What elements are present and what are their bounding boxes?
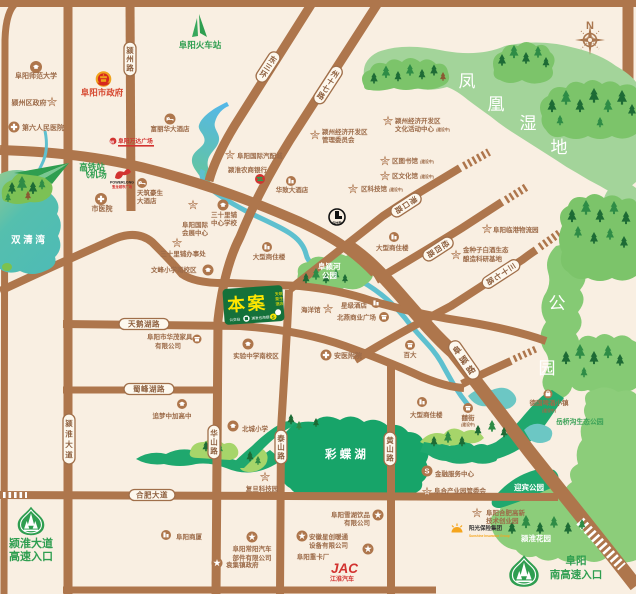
svg-text:复旦科技园: 复旦科技园 [245,484,279,493]
svg-text:华致大酒店: 华致大酒店 [276,185,309,194]
svg-text:公: 公 [549,294,566,313]
svg-text:园: 园 [539,359,556,378]
svg-text:囍街: 囍街 [462,413,476,422]
svg-text:大型商住楼: 大型商住楼 [253,252,286,261]
svg-text:阜阳临港物流园: 阜阳临港物流园 [493,225,539,234]
svg-text:技术创业园: 技术创业园 [486,516,519,525]
svg-text:大酒店: 大酒店 [137,196,157,205]
svg-text:大型商住楼: 大型商住楼 [410,410,443,419]
svg-text:有限公司: 有限公司 [344,518,370,527]
svg-text:SHR: SHR [332,221,342,226]
svg-text:中心学校: 中心学校 [211,218,238,227]
svg-text:(建设中): (建设中) [420,174,435,179]
svg-text:阜阳: 阜阳 [566,554,587,567]
svg-text:三十里铺: 三十里铺 [211,210,238,219]
svg-text:山: 山 [210,437,218,447]
svg-text:江淮汽车: 江淮汽车 [330,575,354,583]
svg-text:安徽星创暖通: 安徽星创暖通 [309,532,349,541]
svg-text:阜阳商厦: 阜阳商厦 [176,532,203,541]
svg-text:会展中心: 会展中心 [182,228,209,237]
svg-text:凤: 凤 [459,72,476,91]
svg-text:阜阳火车站: 阜阳火车站 [179,40,222,50]
svg-text:阜阳合肥高新: 阜阳合肥高新 [486,508,526,517]
svg-text:S: S [271,315,274,320]
svg-text:路: 路 [210,445,218,455]
svg-text:高速入口: 高速入口 [9,549,53,563]
svg-text:(建设中): (建设中) [461,422,476,427]
svg-text:阜阳万达广场: 阜阳万达广场 [118,137,153,145]
svg-text:实验中学南校区: 实验中学南校区 [233,351,279,360]
svg-text:本案: 本案 [227,293,268,316]
svg-text:合肥大道: 合肥大道 [136,490,168,500]
svg-text:阜阳国际: 阜阳国际 [182,220,209,229]
svg-text:山: 山 [277,442,285,452]
svg-text:黄: 黄 [386,435,394,445]
svg-text:(建设中): (建设中) [420,159,435,164]
svg-text:颍: 颍 [125,45,134,55]
svg-text:北城小学: 北城小学 [242,424,269,433]
svg-text:颍州经济开发区: 颍州经济开发区 [321,127,368,136]
svg-text:天鹅湖路: 天鹅湖路 [128,319,160,329]
svg-text:颍州经济开发区: 颍州经济开发区 [394,116,441,125]
svg-text:阳光保险集团: 阳光保险集团 [469,524,503,532]
svg-text:市医院: 市医院 [92,204,113,213]
svg-text:文峰小学南校区: 文峰小学南校区 [150,265,197,274]
svg-text:第六人民医院: 第六人民医院 [22,123,64,132]
svg-text:酿造科研基地: 酿造科研基地 [463,254,503,263]
svg-text:(建设中): (建设中) [436,127,451,132]
svg-text:有限公司: 有限公司 [155,341,181,350]
svg-text:南高速入口: 南高速入口 [550,568,603,581]
svg-text:JAC: JAC [331,561,358,576]
svg-text:公园: 公园 [322,271,337,280]
svg-text:华: 华 [210,428,218,438]
svg-text:Sunshine Insurance Group: Sunshine Insurance Group [469,534,510,538]
svg-text:酒店: 酒店 [275,300,283,307]
svg-text:S: S [424,467,429,476]
svg-text:地: 地 [551,138,568,157]
svg-text:双 清 湾: 双 清 湾 [10,234,45,246]
svg-text:N: N [586,20,594,32]
svg-text:(建设中): (建设中) [542,408,557,413]
svg-text:蜀峰湖路: 蜀峰湖路 [133,384,165,394]
svg-text:公交站: 公交站 [229,316,241,322]
svg-text:区图书馆: 区图书馆 [392,156,419,165]
svg-text:飞机场: 飞机场 [81,170,107,180]
svg-text:岳桥沟生态公园: 岳桥沟生态公园 [556,417,604,426]
svg-text:北燕商业广场: 北燕商业广场 [337,313,377,322]
svg-text:颍: 颍 [64,418,73,428]
svg-text:湿: 湿 [520,114,537,133]
svg-text:路: 路 [277,450,285,460]
svg-text:迎宾公园: 迎宾公园 [514,482,544,492]
svg-text:阜颍河: 阜颍河 [318,261,341,271]
svg-text:阜阳市政府: 阜阳市政府 [81,88,124,98]
svg-text:管理委员会: 管理委员会 [322,135,355,144]
svg-text:路: 路 [386,452,394,462]
svg-text:部件有限公司: 部件有限公司 [233,553,272,562]
svg-text:道: 道 [65,449,73,459]
svg-text:阜阳国际汽配城: 阜阳国际汽配城 [237,151,283,160]
svg-text:颍淮农商银行: 颍淮农商银行 [227,165,268,174]
svg-text:阜阳师范大学: 阜阳师范大学 [15,71,57,80]
svg-text:追梦中加高中: 追梦中加高中 [153,411,192,420]
svg-text:区文化馆: 区文化馆 [392,171,419,180]
svg-text:阜阳市华茂家具: 阜阳市华茂家具 [147,332,193,341]
svg-text:(建设中): (建设中) [389,187,404,192]
svg-text:颍淮大道: 颍淮大道 [8,536,53,550]
svg-text:彩 蝶 湖: 彩 蝶 湖 [324,447,366,461]
svg-text:颍州区政府: 颍州区政府 [11,98,47,107]
svg-text:宝龙城市广场: 宝龙城市广场 [112,184,133,189]
svg-text:海洋馆: 海洋馆 [301,305,321,314]
svg-text:阜阳常阳汽车: 阜阳常阳汽车 [233,544,273,553]
svg-text:三十里铺办事处: 三十里铺办事处 [160,249,206,258]
svg-text:金种子白酒生态: 金种子白酒生态 [462,245,509,254]
svg-text:山: 山 [386,444,394,454]
svg-text:设备有限公司: 设备有限公司 [309,541,348,550]
svg-text:阜阳雪湖饮品: 阜阳雪湖饮品 [331,510,371,519]
svg-text:凰: 凰 [488,95,505,114]
svg-text:天筑豪生: 天筑豪生 [137,188,164,197]
svg-text:路: 路 [126,62,134,72]
svg-text:泰: 泰 [276,433,285,443]
svg-text:百大: 百大 [404,350,418,359]
svg-text:文化活动中心: 文化活动中心 [394,124,435,133]
svg-text:大型商住楼: 大型商住楼 [376,243,409,252]
svg-text:星级酒店: 星级酒店 [341,301,368,310]
svg-text:阜合产业园管委会: 阜合产业园管委会 [434,486,487,495]
svg-text:区科技馆: 区科技馆 [361,184,388,193]
svg-text:POWERLONG: POWERLONG [110,181,134,185]
svg-text:德国啤酒小镇: 德国啤酒小镇 [530,398,570,407]
svg-text:安医附院: 安医附院 [334,351,362,360]
svg-text:金融服务中心: 金融服务中心 [434,469,475,478]
svg-text:淮: 淮 [65,428,73,438]
svg-text:大: 大 [65,439,73,449]
svg-text:阜阳重卡厂: 阜阳重卡厂 [297,552,330,561]
svg-text:富丽华大酒店: 富丽华大酒店 [151,124,191,133]
svg-text:颍淮花园: 颍淮花园 [520,533,551,543]
